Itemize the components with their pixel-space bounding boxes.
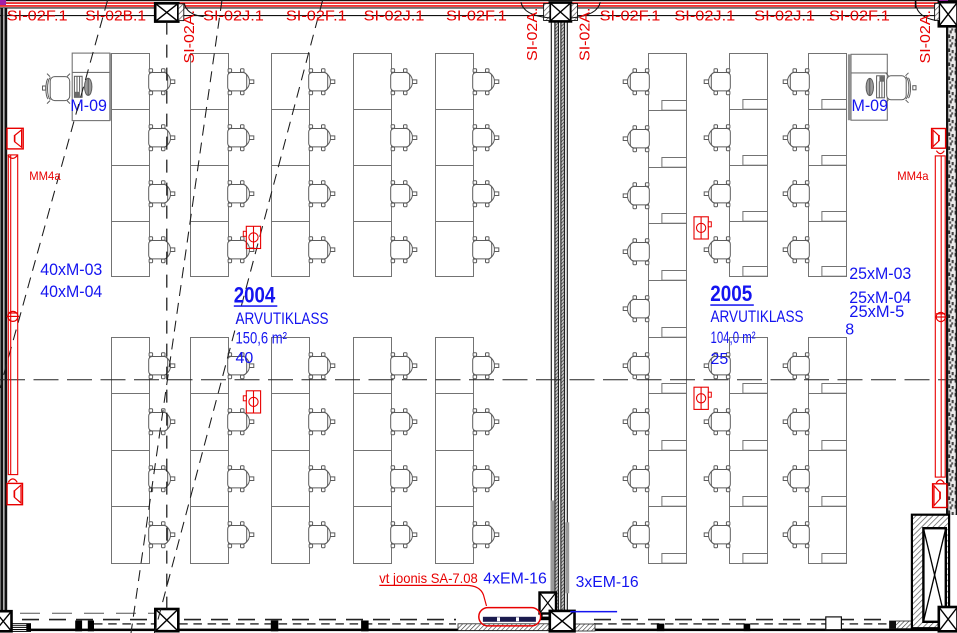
svg-text:3xEM-16: 3xEM-16 — [576, 574, 639, 591]
svg-text:SI-02A.: SI-02A. — [181, 10, 198, 64]
svg-text:M-09: M-09 — [852, 97, 889, 115]
svg-text:SI-02J.1: SI-02J.1 — [674, 8, 735, 25]
svg-text:2005: 2005 — [710, 281, 752, 306]
svg-text:4xEM-16: 4xEM-16 — [483, 571, 547, 588]
svg-text:vt joonis SA-7.08: vt joonis SA-7.08 — [379, 571, 478, 586]
svg-text:8: 8 — [845, 321, 854, 338]
svg-text:SI-02A.: SI-02A. — [917, 10, 934, 64]
svg-text:MM4a: MM4a — [29, 169, 60, 183]
svg-text:SI-02J.1: SI-02J.1 — [754, 8, 815, 25]
svg-text:MM4a: MM4a — [897, 169, 928, 183]
svg-text:2004: 2004 — [234, 282, 276, 307]
svg-text:SI-02A.: SI-02A. — [524, 8, 541, 62]
svg-text:SI-02F.1: SI-02F.1 — [829, 8, 890, 25]
svg-text:SI-02J.1: SI-02J.1 — [364, 8, 425, 25]
svg-text:150,6 m²: 150,6 m² — [236, 329, 288, 347]
svg-text:25xM-03: 25xM-03 — [849, 265, 911, 283]
svg-text:25xM-5: 25xM-5 — [849, 303, 904, 321]
svg-text:SI-02F.1: SI-02F.1 — [7, 8, 68, 25]
svg-text:SI-02B.1: SI-02B.1 — [85, 8, 146, 25]
svg-text:SI-02F.1: SI-02F.1 — [286, 8, 347, 25]
svg-text:40xM-04: 40xM-04 — [40, 283, 102, 301]
svg-text:25: 25 — [711, 351, 729, 368]
svg-text:SI-02A.: SI-02A. — [577, 8, 594, 62]
svg-text:SI-02J.1: SI-02J.1 — [203, 8, 264, 25]
svg-text:SI-02F.1: SI-02F.1 — [600, 8, 661, 25]
svg-text:ARVUTIKLASS: ARVUTIKLASS — [711, 307, 804, 326]
svg-text:104,0 m²: 104,0 m² — [711, 329, 756, 347]
svg-text:40: 40 — [236, 350, 254, 367]
svg-text:40xM-03: 40xM-03 — [40, 261, 102, 279]
svg-text:M-09: M-09 — [70, 97, 107, 115]
svg-text:ARVUTIKLASS: ARVUTIKLASS — [236, 309, 329, 328]
svg-text:SI-02F.1: SI-02F.1 — [446, 8, 507, 25]
